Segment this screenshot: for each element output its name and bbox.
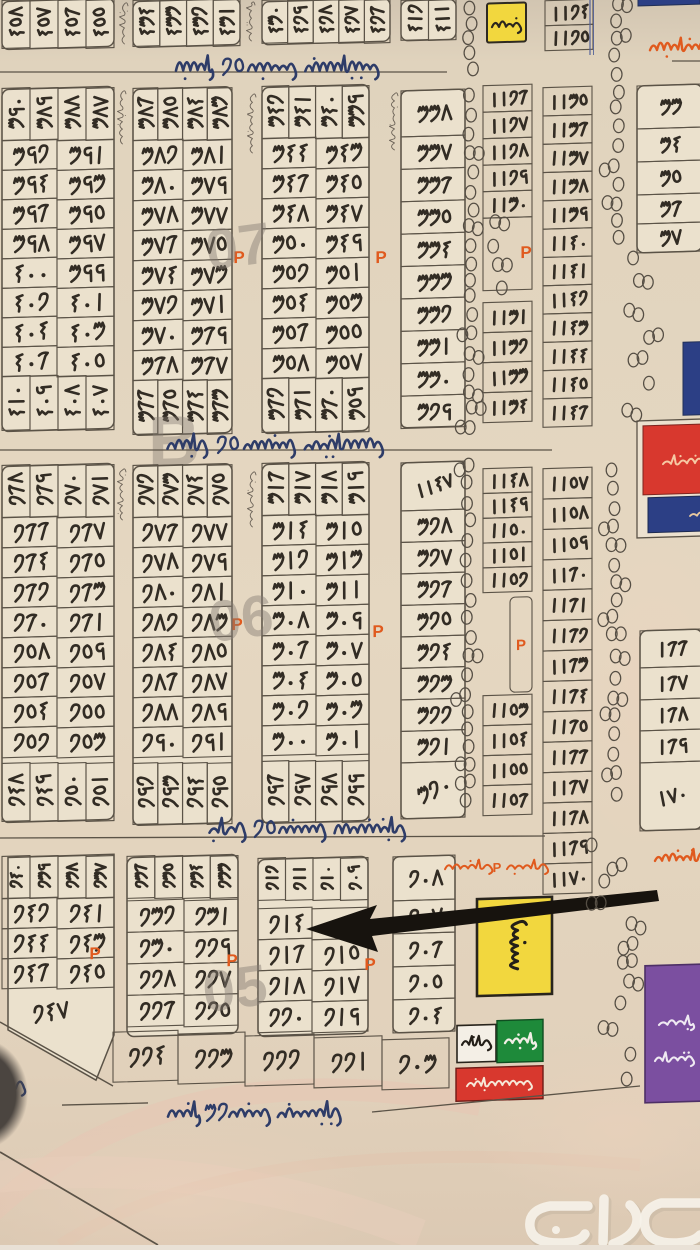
svg-text:07: 07 <box>202 210 273 283</box>
svg-text:06: 06 <box>205 582 276 655</box>
svg-text:05: 05 <box>199 952 270 1025</box>
svg-text:P: P <box>375 248 386 267</box>
svg-text:P: P <box>372 622 383 641</box>
svg-text:P: P <box>493 860 502 875</box>
svg-text:P: P <box>520 243 531 262</box>
svg-text:P: P <box>364 955 375 974</box>
svg-text:P: P <box>516 637 526 654</box>
svg-text:P: P <box>89 944 100 963</box>
